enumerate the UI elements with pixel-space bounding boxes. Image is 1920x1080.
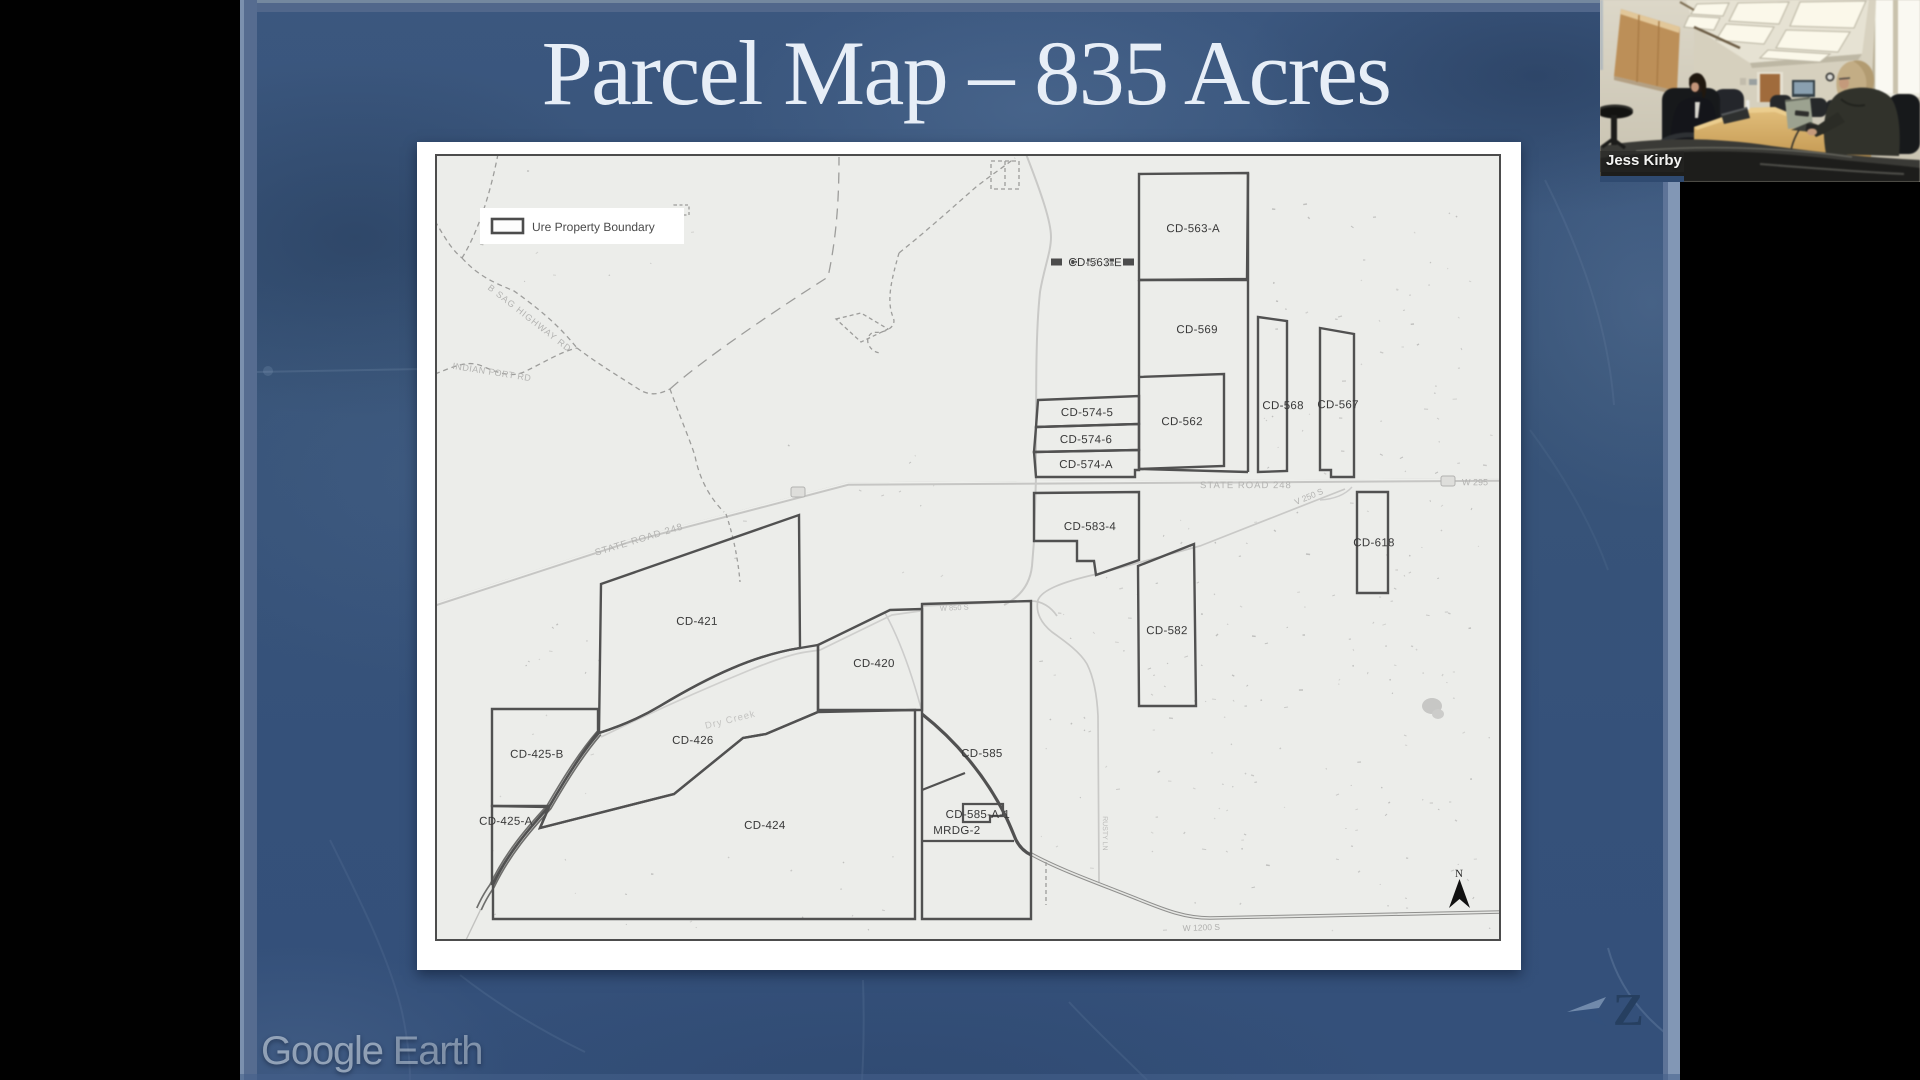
svg-text:CD-424: CD-424 [744, 820, 786, 832]
svg-text:CD-563-A: CD-563-A [1166, 223, 1220, 235]
svg-text:W 295: W 295 [1462, 477, 1488, 487]
svg-text:W 850 S: W 850 S [940, 603, 969, 613]
svg-text:STATE ROAD 248: STATE ROAD 248 [1200, 480, 1292, 491]
svg-text:W 1200 S: W 1200 S [1183, 922, 1221, 933]
svg-text:N: N [1455, 868, 1463, 880]
svg-text:MRDG-2: MRDG-2 [933, 825, 980, 837]
svg-text:RUSTY LN: RUSTY LN [1101, 816, 1108, 851]
svg-text:CD-425-A: CD-425-A [479, 816, 533, 828]
svg-text:CD-585-A-1: CD-585-A-1 [946, 809, 1010, 821]
svg-text:CD-562: CD-562 [1161, 416, 1202, 428]
svg-text:CD-582: CD-582 [1146, 625, 1187, 637]
svg-text:CD-583-4: CD-583-4 [1064, 521, 1117, 533]
svg-text:CD-568: CD-568 [1262, 400, 1303, 412]
svg-text:Ure Property Boundary: Ure Property Boundary [532, 220, 655, 234]
svg-text:CD-421: CD-421 [676, 616, 717, 628]
svg-text:CD-569: CD-569 [1176, 324, 1217, 336]
svg-text:CD-574-A: CD-574-A [1059, 459, 1113, 471]
svg-text:CD-425-B: CD-425-B [510, 749, 564, 761]
svg-text:CD-426: CD-426 [672, 735, 713, 747]
svg-text:CD-585: CD-585 [961, 748, 1002, 760]
svg-text:CD-563-E: CD-563-E [1068, 257, 1122, 269]
svg-text:CD-420: CD-420 [853, 658, 894, 670]
svg-text:CD-574-5: CD-574-5 [1061, 407, 1113, 419]
svg-text:CD-618: CD-618 [1353, 537, 1394, 549]
svg-text:Z: Z [1613, 985, 1644, 1035]
svg-text:CD-567: CD-567 [1317, 399, 1358, 411]
svg-text:CD-574-6: CD-574-6 [1060, 434, 1112, 446]
